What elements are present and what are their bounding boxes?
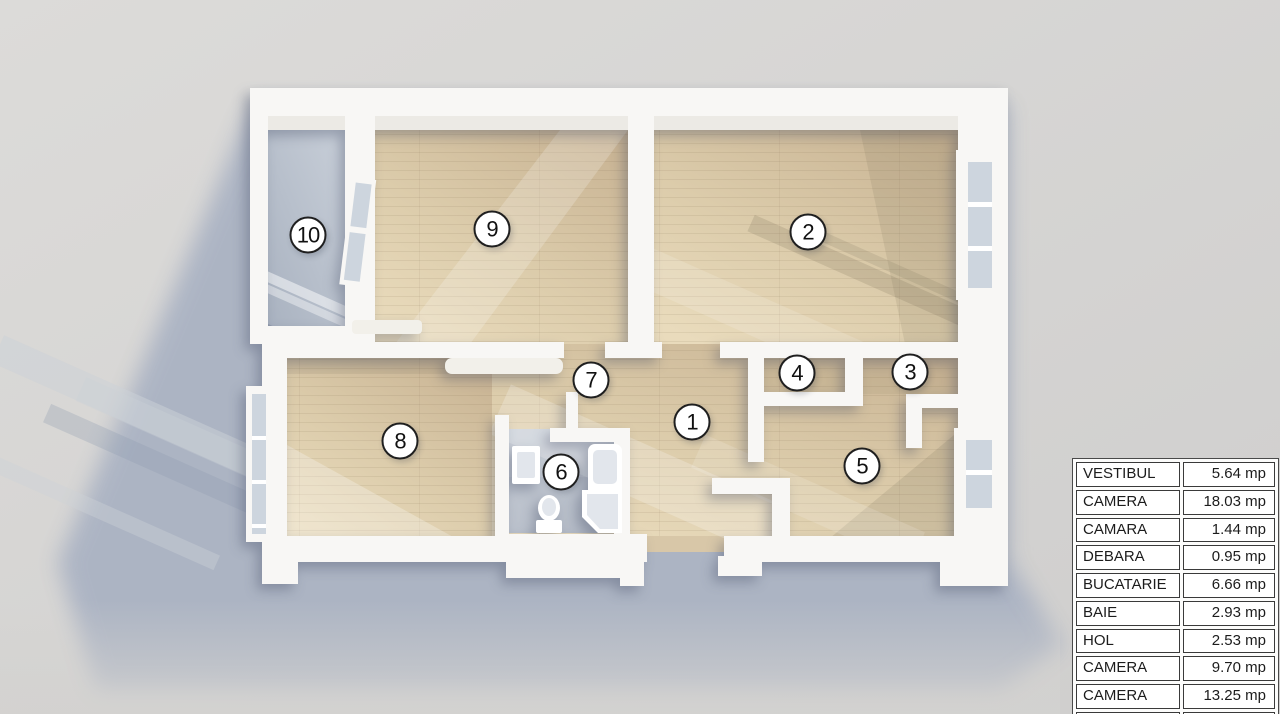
legend-room-area: 6.66 mp — [1183, 573, 1275, 598]
legend-room-area: 1.44 mp — [1183, 518, 1275, 543]
legend-room-area: 2.93 mp — [1183, 601, 1275, 626]
legend-row: DEBARA 0.95 mp — [1076, 545, 1275, 570]
wall-left-balcony — [250, 88, 268, 344]
wall-mid-a — [275, 342, 564, 358]
legend-row: CAMARA 1.44 mp — [1076, 518, 1275, 543]
legend-row: BAIE 2.93 mp — [1076, 601, 1275, 626]
legend-room-name: CAMARA — [1076, 518, 1180, 543]
room-marker-8: 8 — [382, 423, 419, 460]
wall-kitchen-nook-v — [906, 394, 922, 448]
sink — [512, 446, 540, 484]
wall-top — [250, 88, 1008, 116]
room8-counter-ledge — [445, 358, 563, 374]
room-marker-4: 4 — [779, 355, 816, 392]
room-marker-1: 1 — [674, 404, 711, 441]
legend-row: HOL 2.53 mp — [1076, 629, 1275, 654]
legend-room-name: CAMERA — [1076, 490, 1180, 515]
toilet — [536, 495, 562, 533]
legend-room-name: CAMERA — [1076, 684, 1180, 709]
legend-room-area: 2.53 mp — [1183, 629, 1275, 654]
legend-room-name: VESTIBUL — [1076, 462, 1180, 487]
legend-room-area: 0.95 mp — [1183, 545, 1275, 570]
legend-table: VESTIBUL 5.64 mp CAMERA 18.03 mp CAMARA … — [1072, 458, 1279, 714]
wall-bath-right-stub — [620, 556, 644, 586]
floor-plan-scene: 1 2 3 4 5 6 7 8 9 10 VESTIBUL 5.64 mp CA… — [0, 0, 1280, 714]
legend-room-area: 18.03 mp — [1183, 490, 1275, 515]
wall-bottom-left — [275, 536, 510, 562]
wall-bath-left — [495, 415, 509, 542]
legend-room-area: 5.64 mp — [1183, 462, 1275, 487]
wall-bottom-right-step — [940, 560, 1008, 586]
legend-room-area: 13.25 mp — [1183, 684, 1275, 709]
shadow-fade — [0, 600, 1060, 714]
window-right-bottom-bay — [954, 428, 1004, 542]
wall-bottom-left-step — [262, 560, 298, 584]
legend-room-name: CAMERA — [1076, 656, 1180, 681]
legend-row: BUCATARIE 6.66 mp — [1076, 573, 1275, 598]
wall-closet4-bottom — [762, 392, 846, 406]
legend-room-name: BUCATARIE — [1076, 573, 1180, 598]
room-marker-10: 10 — [290, 217, 327, 254]
room9-windowsill — [352, 320, 422, 334]
legend-row: CAMERA 9.70 mp — [1076, 656, 1275, 681]
legend-room-area: 9.70 mp — [1183, 656, 1275, 681]
legend-room-name: DEBARA — [1076, 545, 1180, 570]
room-marker-2: 2 — [790, 214, 827, 251]
legend-row: CAMERA 13.25 mp — [1076, 684, 1275, 709]
room-marker-9: 9 — [474, 211, 511, 248]
room-marker-7: 7 — [573, 362, 610, 399]
wall-closet-divider — [845, 342, 863, 406]
wall-vestibule-kitchen — [748, 342, 764, 462]
legend-row: VESTIBUL 5.64 mp — [1076, 462, 1275, 487]
wall-room9-room2-divider — [628, 112, 654, 344]
room-marker-3: 3 — [892, 354, 929, 391]
window-right-top-bay — [956, 150, 1004, 300]
entrance-step — [718, 556, 762, 576]
entrance-floor — [646, 536, 724, 552]
legend-room-name: BAIE — [1076, 601, 1180, 626]
wall-mid-b — [605, 342, 662, 358]
wall-bath-bottom-step — [506, 560, 628, 578]
room-marker-6: 6 — [543, 454, 580, 491]
window-left-bay — [246, 386, 280, 542]
wall-hall-stub — [566, 392, 578, 438]
room-marker-5: 5 — [844, 448, 881, 485]
legend-row: CAMERA 18.03 mp — [1076, 490, 1275, 515]
wall-entry-closet-v — [772, 478, 790, 540]
legend-room-name: HOL — [1076, 629, 1180, 654]
